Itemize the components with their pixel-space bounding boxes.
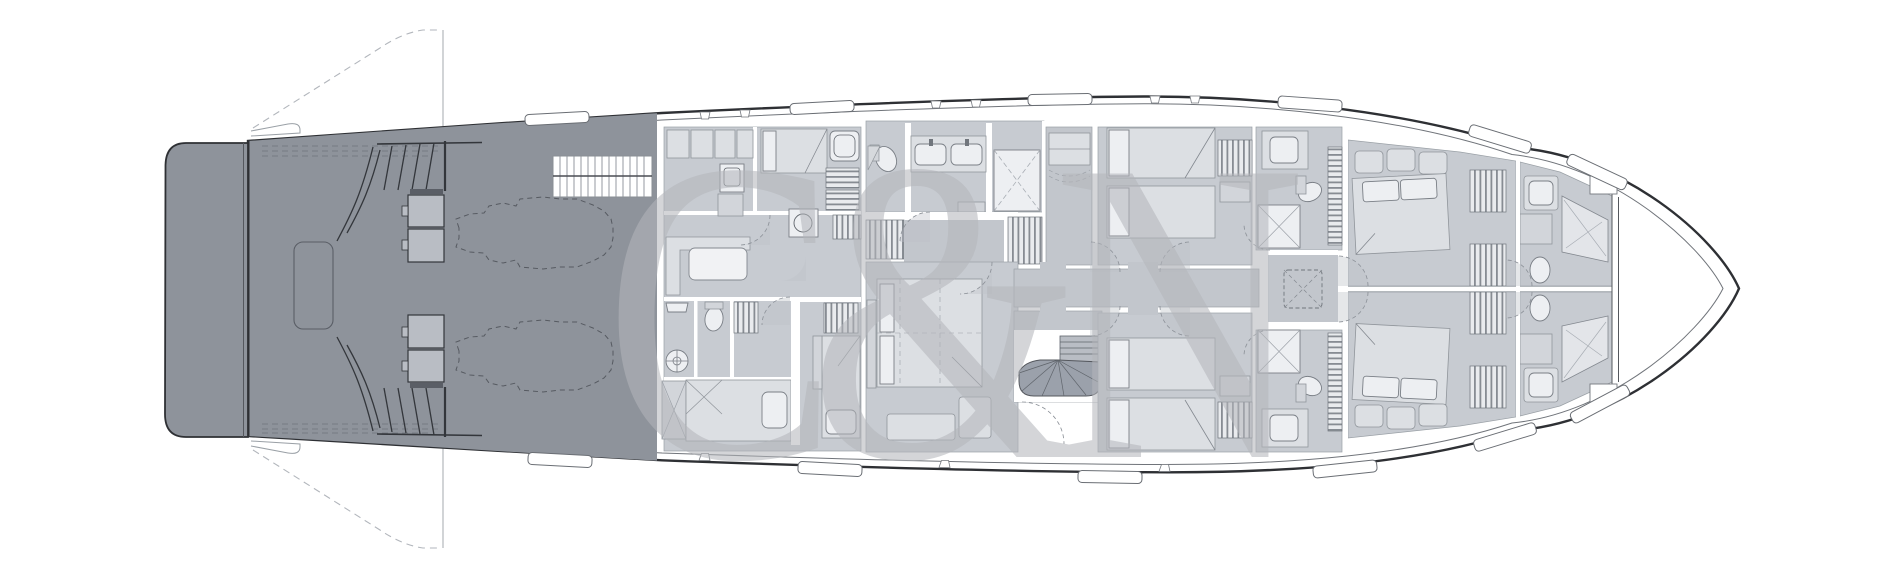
svg-text:C&N: C&N [604,72,1299,551]
